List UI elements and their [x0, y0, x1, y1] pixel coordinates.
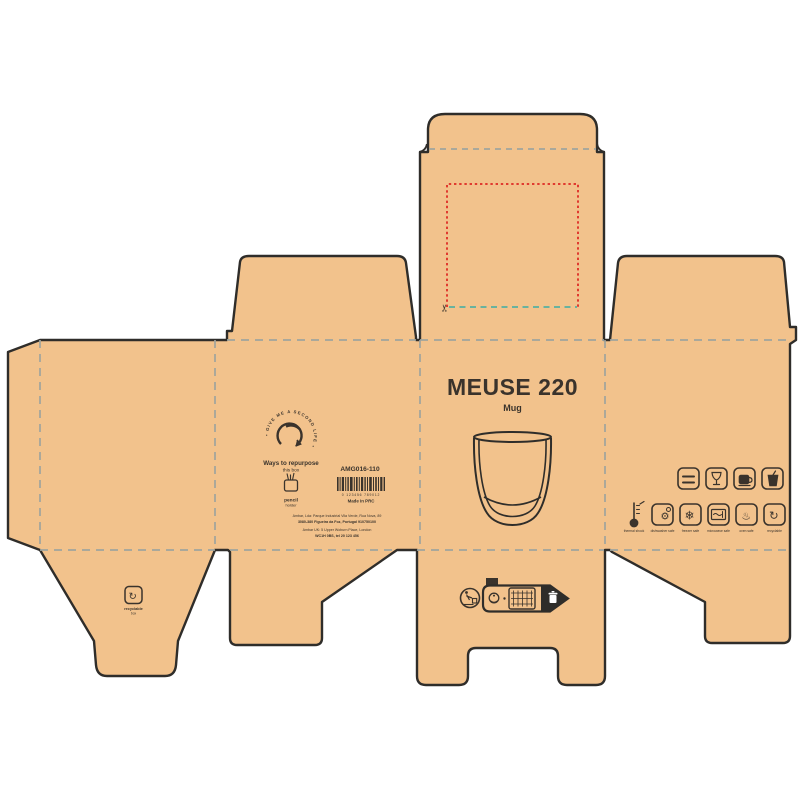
barcode-digits: 0 123456 789012 [342, 493, 380, 497]
idea-sublabel: holder [285, 503, 297, 508]
sku-code: AMG016-110 [340, 466, 380, 473]
svg-text:♨: ♨ [742, 511, 751, 523]
address-line-1: Ambar, Lda: Parque Industrial Vila Verde… [293, 514, 382, 518]
svg-text:❄: ❄ [685, 509, 695, 523]
address-line-4: WC1H 0BS, tel 20 123 456 [315, 534, 359, 538]
bin-icon [549, 591, 558, 603]
svg-text:↻: ↻ [769, 511, 779, 523]
repurpose-title: Ways to repurpose [263, 460, 319, 467]
address-line-2: 3080-380 Figueira da Foz, Portugal 91075… [298, 520, 376, 524]
packaging-dieline-canvas: ✂ • GIVE ME A SECOND LIFE • Ways to repu… [0, 0, 800, 800]
microwave-caption: microwave safe [707, 529, 730, 533]
product-subtitle: Mug [503, 403, 522, 413]
dieline-svg: ✂ • GIVE ME A SECOND LIFE • Ways to repu… [0, 0, 800, 800]
thermo-caption: thermal shock [624, 529, 645, 533]
infotri-tab-label: FR [489, 580, 494, 585]
separator-dot [503, 597, 505, 599]
oven-caption: oven safe [739, 529, 753, 533]
freezer-caption: freezer safe [682, 529, 700, 533]
box-dieline-outline [8, 114, 796, 685]
repurpose-subtitle: this box [283, 468, 300, 474]
address-line-3: Ambar UK: 5 Upper Woburn Place, London [303, 528, 372, 532]
svg-text:⚙: ⚙ [661, 512, 670, 523]
flap-recycle-glyph: ↻ [129, 592, 137, 603]
flap-recycle-sublabel: box [131, 612, 137, 616]
dishwasher-caption: dishwasher safe [651, 529, 675, 533]
recyclable-caption: recyclable [767, 529, 782, 533]
scissors-icon: ✂ [440, 304, 451, 312]
flap-recycle-label: recyclable [124, 607, 143, 611]
product-title: MEUSE 220 [447, 374, 578, 400]
origin-label: Made in PRC [348, 499, 376, 504]
